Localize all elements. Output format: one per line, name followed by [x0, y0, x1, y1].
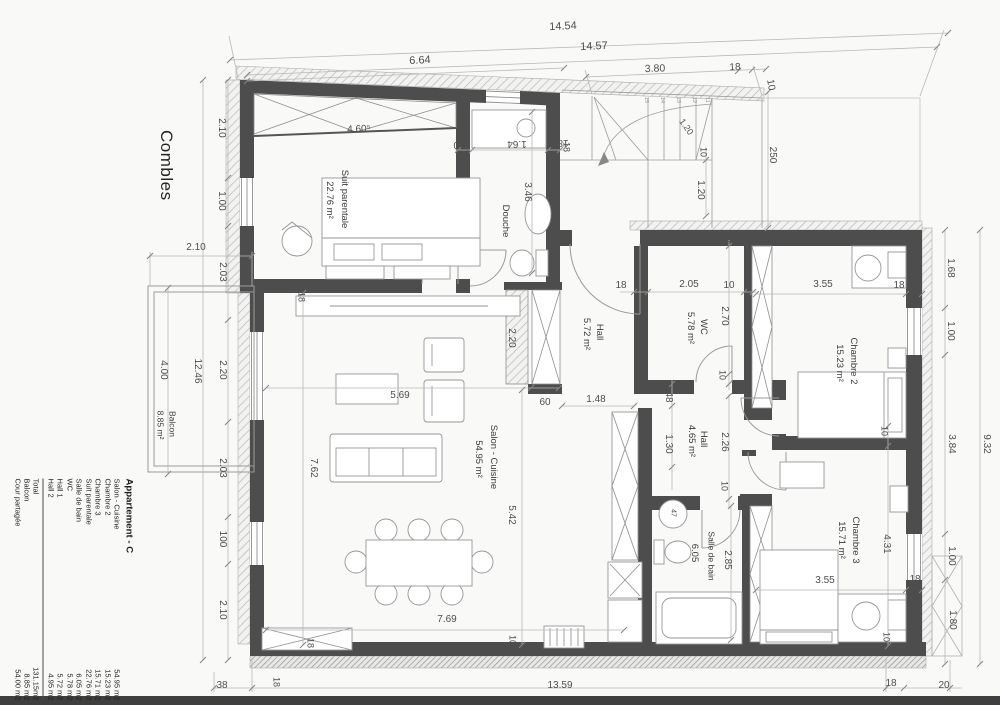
dim-label: 2.03 [217, 262, 227, 281]
dim-label: 1.00 [216, 191, 226, 210]
dim-label: 1.68 [945, 258, 955, 277]
armchair-1 [424, 338, 464, 372]
dim-label: 250 [767, 147, 777, 164]
room-label: Chambre 3 [850, 517, 860, 564]
dim-label: 10 [723, 281, 734, 291]
room-label: 5.72 m² [581, 318, 591, 350]
dim-label: 10 [720, 481, 729, 491]
dim-label: 5 [722, 241, 730, 245]
area-row: Balcon8.85 m2 [22, 479, 31, 701]
dim-label: 14.54 [549, 21, 577, 33]
nightstand-chambre3 [890, 486, 908, 512]
dim-label: 1.00 [945, 321, 955, 340]
dim-label: 47 [670, 509, 677, 517]
dim-label: 38 [216, 681, 227, 691]
room-label: Suit parentale [339, 170, 349, 229]
dim-label: 10 [880, 426, 889, 436]
room-label: 4.65 m² [686, 425, 696, 457]
dim-label: 4.00 [158, 360, 168, 379]
room-label: Balcon [168, 411, 177, 437]
dim-label: 14.57 [580, 41, 608, 53]
stair-step-number: 15 [642, 97, 648, 103]
dim-label: 3.55 [813, 280, 832, 290]
dim-label: 100 [217, 531, 227, 548]
room-label: 15.71 m² [836, 521, 846, 559]
area-row: Total131.15m2 [32, 479, 41, 701]
dim-label: 18 [909, 575, 920, 585]
dim-label: 2.20 [506, 328, 516, 347]
sideboard-tv [296, 296, 520, 316]
stair-step-number: 13 [674, 97, 680, 103]
toilet-douche [510, 250, 548, 276]
room-label: WC [698, 319, 708, 335]
dim-label: 1.00 [946, 546, 956, 565]
room-label: 8.85 m² [156, 411, 165, 440]
kitchen-units [608, 412, 642, 642]
area-row: Cour partagée54.00 m2 [13, 479, 22, 701]
dim-label: 18 [297, 292, 306, 302]
dim-label: 2.03 [217, 458, 227, 477]
dim-label: 18 [306, 638, 315, 648]
desk-chambre3 [780, 462, 824, 488]
dim-label: 7.69 [437, 615, 456, 625]
room-label: 6.05 [689, 544, 699, 563]
dim-label: 10 [699, 147, 708, 157]
level-title: Combles [156, 130, 176, 190]
dim-label: 2.85 [722, 550, 732, 569]
area-table-totals: Total131.15m2Balcon8.85 m2Cour partagée5… [13, 479, 41, 701]
area-row: Chambre 215.23 m2 [103, 479, 112, 701]
dim-label: 13.59 [547, 681, 572, 691]
dim-label: 2.26 [719, 432, 729, 451]
armchair-master [282, 222, 312, 256]
dim-label: 2.10 [216, 118, 226, 137]
area-row: Chambre 315.71 m2 [93, 479, 102, 701]
dim-label: 5.42 [506, 505, 516, 524]
area-table-title: Appartement - C [124, 479, 135, 701]
area-table-rows: Salon - Cuisine54.95 m2Chambre 215.23 m2… [46, 479, 122, 701]
dim-label: 2.20 [217, 360, 227, 379]
dim-label: 10 [453, 139, 464, 149]
dim-label: 18 [729, 63, 740, 73]
dim-label: 2.10 [217, 600, 227, 619]
room-label: Hall [698, 431, 708, 447]
dim-label: 1.20 [695, 180, 705, 199]
stair-step-number: 11 [703, 97, 709, 103]
bathtub [656, 592, 742, 644]
sofa [330, 434, 442, 482]
dim-label: 10 [882, 632, 891, 642]
coffee-table [336, 374, 398, 404]
dim-label: 1.80 [947, 610, 957, 629]
room-label: 15.23 m² [834, 344, 844, 382]
room-label: Salon - Cuisine [488, 425, 498, 489]
armchair-2 [424, 380, 464, 422]
room-label: Chambre 2 [848, 338, 858, 385]
room-label: 5.78 m² [685, 312, 695, 344]
dim-label: 9.32 [981, 434, 991, 453]
dim-label: 3.84 [946, 434, 956, 453]
dim-label: 2.10 [186, 243, 205, 253]
dim-label: 18 [562, 142, 571, 152]
dim-label: 3.46 [522, 182, 532, 201]
dim-label: 18 [272, 677, 281, 687]
furniture [262, 110, 908, 650]
dim-label: 3.80 [645, 63, 666, 74]
stair-step-number: 14 [658, 97, 664, 103]
dim-label: 1.30 [663, 434, 673, 453]
dim-label: 12.46 [192, 358, 202, 383]
dim-label: 6.64 [409, 55, 431, 67]
dim-label: 18 [885, 679, 896, 689]
page-break-bar [0, 696, 1000, 705]
area-table: Appartement - C Salon - Cuisine54.95 m2C… [18, 479, 135, 701]
toilet-bathroom [654, 540, 691, 564]
dim-label: 20 [938, 681, 949, 691]
bed-chambre3 [760, 550, 838, 644]
stair-step-number: 12 [690, 97, 696, 103]
staircase [560, 90, 920, 228]
room-label: Salle de bain [707, 531, 716, 580]
dim-label: 2.05 [679, 280, 698, 290]
room-label: Douche [500, 205, 510, 238]
floor-plan-page: 14.5414.576.643.8018102.101.002.032.202.… [0, 0, 1000, 705]
dining-table [366, 540, 472, 586]
dim-label: 18 [615, 281, 626, 291]
dim-label: 1.48 [586, 395, 605, 405]
room-label: 22.76 m² [324, 181, 334, 219]
nightstand-chambre2 [888, 348, 906, 368]
dim-label: 1.64 [507, 138, 526, 148]
dim-label: 5.69 [390, 391, 409, 401]
area-row: WC5.78 m2 [65, 479, 74, 701]
dim-label: 4.31 [881, 534, 891, 553]
dim-label: 18 [893, 281, 904, 291]
vanity-chambre3 [838, 594, 906, 642]
area-row: Salle de bain6.05 m2 [74, 479, 83, 701]
dishwasher [544, 626, 584, 648]
area-row: Hall 15.72 m2 [55, 479, 64, 701]
area-row: Salon - Cuisine54.95 m2 [112, 479, 121, 701]
room-label: Hall [594, 324, 604, 340]
dim-label: 7.62 [308, 458, 318, 477]
dim-label: 4.60⁵ [347, 125, 371, 136]
dim-label: 10 [508, 635, 517, 645]
dim-label: 60 [539, 398, 550, 408]
dim-label: 10 [764, 79, 776, 92]
room-label: 54.95 m² [473, 440, 483, 478]
area-row: Hall 24.95 m2 [46, 479, 55, 701]
area-table-divider [43, 479, 44, 701]
dim-label: 10 [718, 370, 727, 380]
area-row: Suit parentale22.76 m2 [84, 479, 93, 701]
dim-label: 2.70 [719, 306, 729, 325]
dim-label: 48 [663, 391, 673, 402]
dim-label: 3.55 [815, 576, 834, 586]
